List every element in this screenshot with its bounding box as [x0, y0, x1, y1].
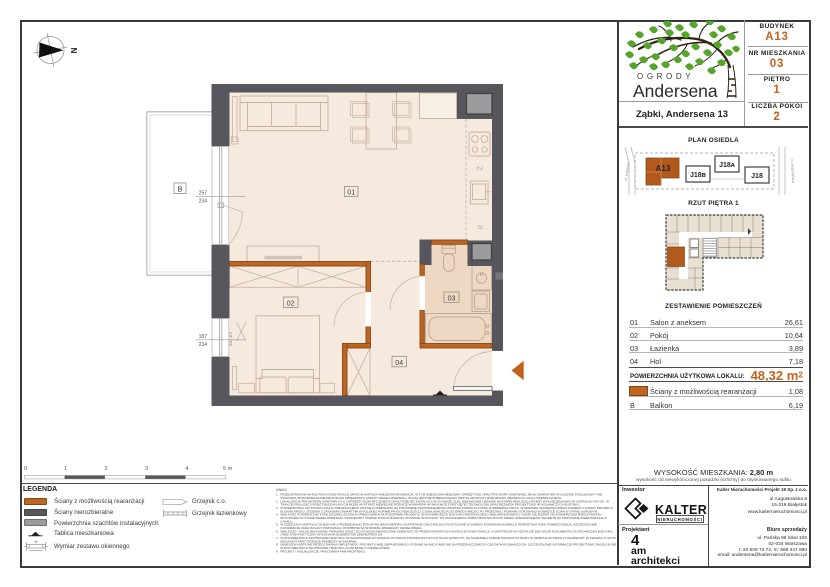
svg-text:0: 0	[24, 466, 27, 472]
svg-text:B: B	[177, 185, 182, 194]
svg-text:N: N	[69, 48, 78, 54]
svg-text:J18: J18	[751, 173, 763, 180]
svg-text:4: 4	[186, 466, 189, 472]
svg-text:02: 02	[287, 301, 295, 308]
svg-text:zl: zl	[476, 225, 482, 229]
svg-text:187: 187	[199, 334, 208, 340]
svg-text:234: 234	[199, 199, 208, 205]
svg-text:234: 234	[199, 342, 208, 348]
svg-text:Z: Z	[476, 166, 483, 171]
svg-text:5 m: 5 m	[223, 466, 233, 472]
svg-text:01: 01	[347, 190, 355, 197]
svg-text:1: 1	[64, 466, 67, 472]
svg-text:J18ᴀ: J18ᴀ	[719, 162, 736, 169]
svg-text:ul. Jagiellońska: ul. Jagiellońska	[790, 159, 795, 183]
svg-text:3: 3	[145, 466, 148, 472]
svg-text:A13: A13	[656, 164, 671, 173]
svg-text:2: 2	[105, 466, 108, 472]
svg-text:257: 257	[199, 191, 208, 197]
svg-text:04: 04	[395, 360, 403, 367]
svg-text:8x0,1m: 8x0,1m	[228, 332, 233, 346]
svg-text:03: 03	[448, 296, 456, 303]
svg-text:J18ʙ: J18ʙ	[690, 172, 707, 179]
